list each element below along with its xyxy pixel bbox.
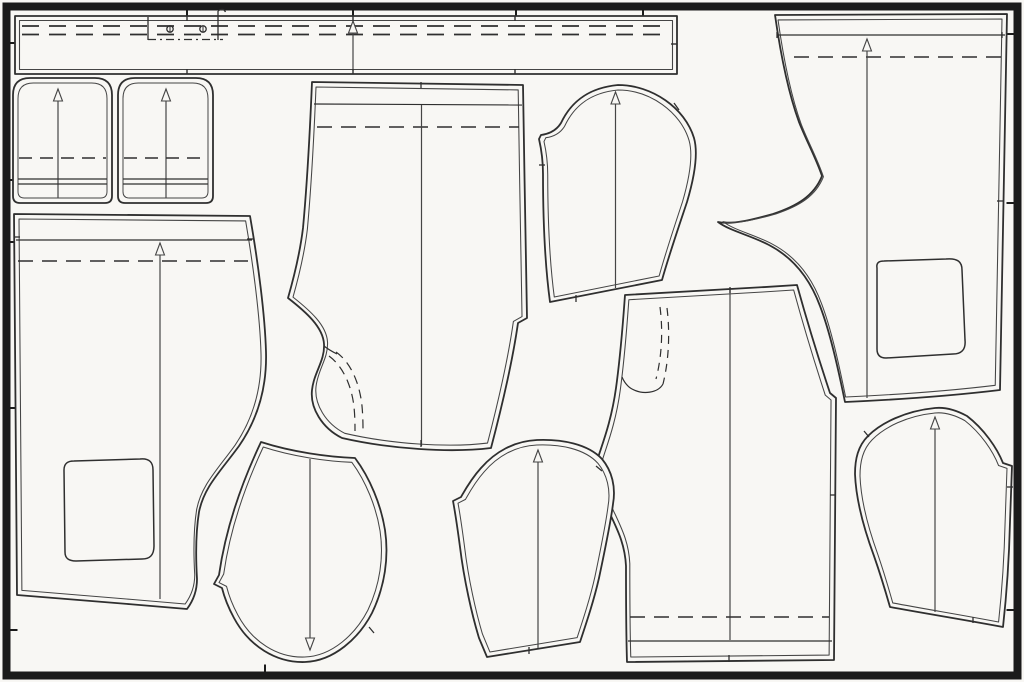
marker-svg — [0, 0, 1024, 682]
piece-pocket-facing-right — [118, 78, 213, 203]
piece-pocket-facing-left — [13, 78, 112, 203]
cut-line — [597, 285, 836, 662]
cut-line — [288, 82, 527, 450]
piece-trouser-front-center — [288, 82, 527, 450]
pattern-marker-stage — [0, 0, 1024, 682]
piece-trouser-front-right — [597, 285, 836, 662]
piece-waistband — [15, 9, 677, 74]
cut-line — [15, 16, 677, 74]
